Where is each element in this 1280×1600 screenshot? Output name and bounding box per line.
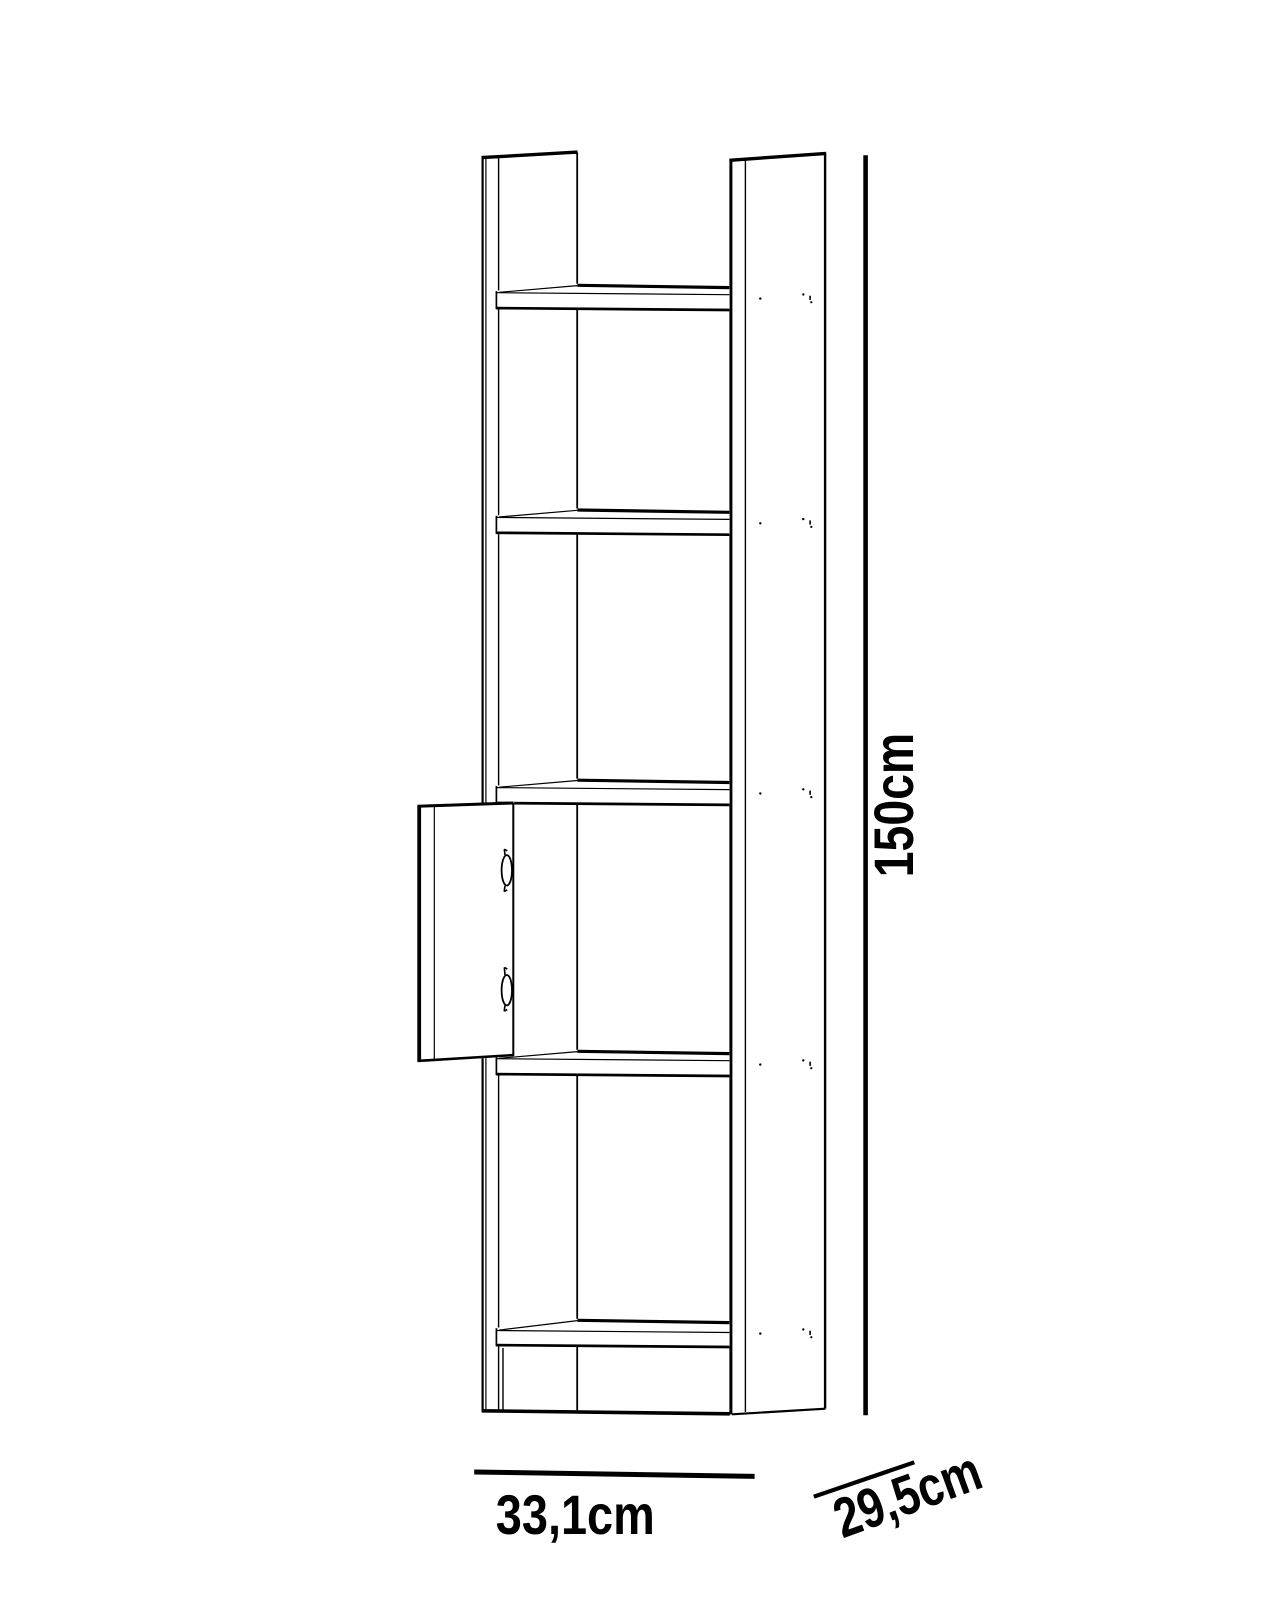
svg-text:150cm: 150cm [862,733,925,878]
svg-text:33,1cm: 33,1cm [496,1483,655,1546]
